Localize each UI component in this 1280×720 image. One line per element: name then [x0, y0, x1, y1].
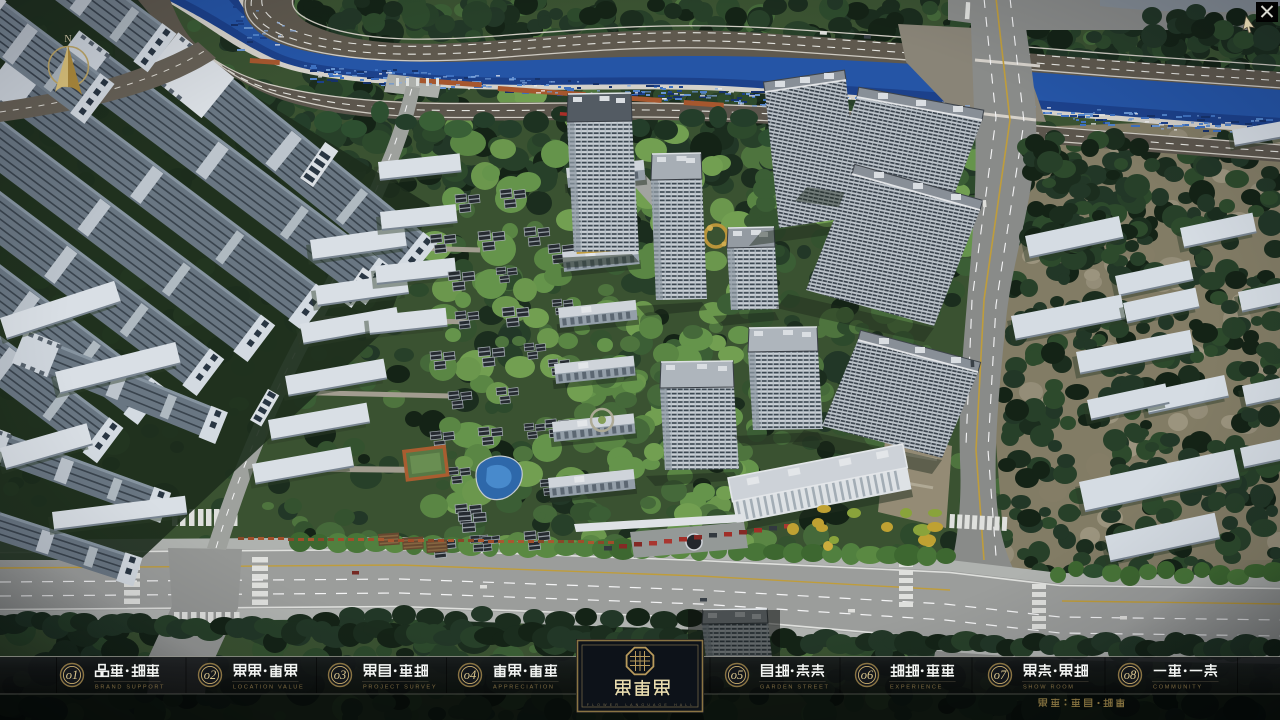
svg-text:BRAND SUPPORT: BRAND SUPPORT [95, 685, 165, 691]
svg-text:F L O W E R L A N G U A G E: F L O W E R L A N G U A G E H A L L [587, 703, 694, 707]
svg-text:EXPERIENCE: EXPERIENCE [890, 685, 943, 691]
svg-text:o8: o8 [1124, 668, 1137, 682]
svg-text:o5: o5 [731, 668, 744, 682]
svg-text:COMMUNITY: COMMUNITY [1153, 685, 1203, 691]
svg-text:o3: o3 [334, 668, 347, 682]
svg-text:LOCATION VALUE: LOCATION VALUE [233, 685, 304, 691]
svg-text:o7: o7 [994, 668, 1007, 682]
svg-text:APPRECIATION: APPRECIATION [493, 685, 555, 691]
svg-text:o2: o2 [204, 668, 217, 682]
svg-text:GARDEN STREET: GARDEN STREET [760, 685, 830, 691]
svg-text:o4: o4 [464, 668, 477, 682]
svg-text:o6: o6 [861, 668, 874, 682]
svg-text:SHOW ROOM: SHOW ROOM [1023, 685, 1075, 691]
svg-text:o1: o1 [66, 668, 79, 682]
svg-text:PROJECT SURVEY: PROJECT SURVEY [363, 685, 437, 691]
